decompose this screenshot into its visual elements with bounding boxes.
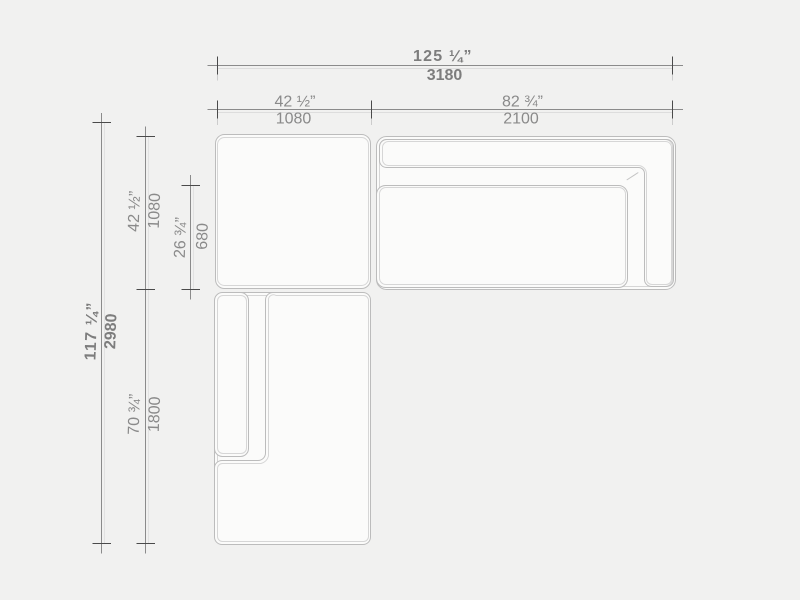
svg-text:82 ¾”: 82 ¾” bbox=[502, 94, 543, 111]
svg-text:3180: 3180 bbox=[427, 67, 463, 84]
svg-text:26 ¾”: 26 ¾” bbox=[172, 217, 190, 258]
svg-text:680: 680 bbox=[194, 223, 212, 250]
svg-text:2100: 2100 bbox=[503, 111, 539, 128]
svg-text:42 ½”: 42 ½” bbox=[275, 94, 316, 111]
svg-text:2980: 2980 bbox=[102, 313, 120, 349]
svg-text:117 ¼”: 117 ¼” bbox=[82, 301, 101, 360]
svg-text:1800: 1800 bbox=[146, 396, 164, 432]
svg-text:1080: 1080 bbox=[276, 111, 312, 128]
svg-text:42 ½”: 42 ½” bbox=[126, 191, 144, 232]
svg-text:70 ¾”: 70 ¾” bbox=[126, 394, 144, 435]
svg-text:125 ¼”: 125 ¼” bbox=[413, 48, 473, 65]
svg-text:1080: 1080 bbox=[146, 193, 164, 229]
